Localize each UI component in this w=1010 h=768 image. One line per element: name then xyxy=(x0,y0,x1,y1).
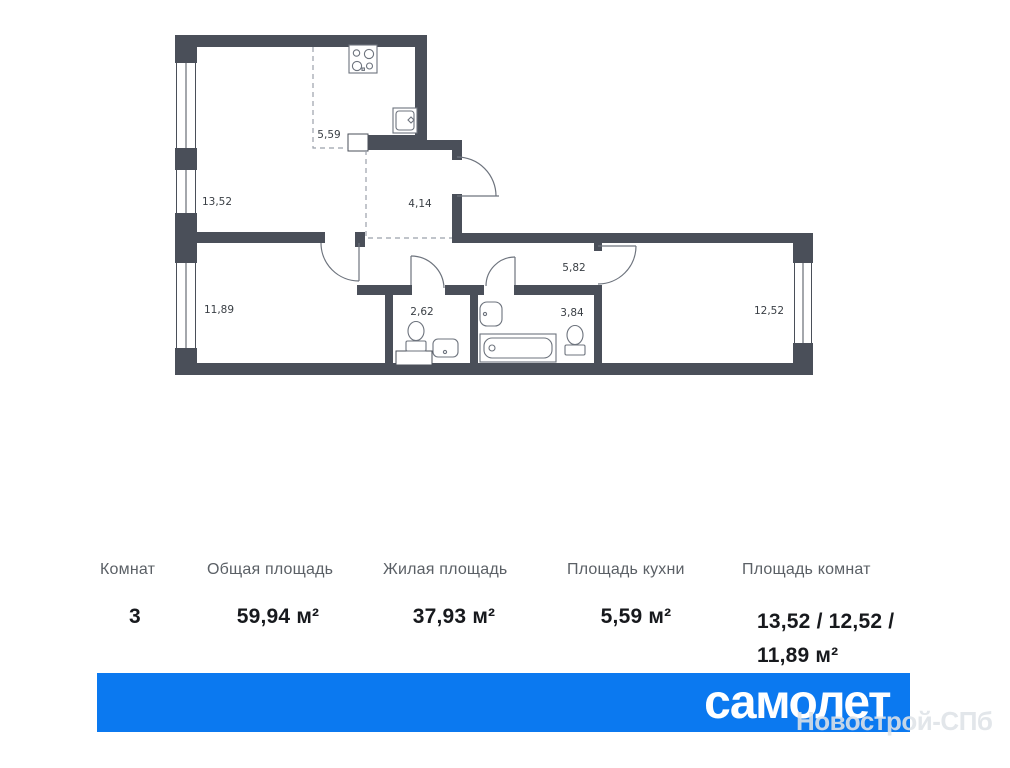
rooms-value: 3 xyxy=(100,605,170,629)
total-area-header: Общая площадь xyxy=(207,561,349,579)
col-rooms-area: Площадь комнат 13,52 / 12,52 / 11,89 м² xyxy=(742,561,908,672)
wall-room-right-lower xyxy=(594,285,602,363)
kitchen-area-label: 5,59 xyxy=(317,129,340,141)
doors xyxy=(321,157,636,288)
wall-bath-top-left xyxy=(478,285,484,295)
window-bedroom-left xyxy=(175,263,197,348)
hallway-area-label: 4,14 xyxy=(408,198,432,210)
wall-bedroom-door-jamb xyxy=(355,232,365,247)
window-living-2 xyxy=(175,170,197,213)
wc-area-label: 2,62 xyxy=(410,306,433,318)
window-living-1 xyxy=(175,63,197,148)
bathtub-icon xyxy=(480,334,556,362)
col-kitchen-area: Площадь кухни 5,59 м² xyxy=(567,561,705,629)
kitchen-shaft xyxy=(348,134,368,151)
col-rooms: Комнат 3 xyxy=(100,561,170,629)
wc-door-arc xyxy=(411,256,444,288)
living-area-header: Жилая площадь xyxy=(383,561,525,579)
wall-bath-top-right xyxy=(514,285,594,295)
bedroom-left-area-label: 11,89 xyxy=(204,304,234,316)
wall-entrance-lower xyxy=(452,194,462,243)
wall-entrance-jamb xyxy=(452,148,462,160)
wall-room-right-stub xyxy=(594,243,602,251)
kitchen-sink-icon xyxy=(393,108,417,133)
brand-banner: самолет xyxy=(97,673,910,732)
wall-under-sink xyxy=(367,135,415,150)
total-area-value: 59,94 м² xyxy=(207,605,349,629)
kitchen-area-header: Площадь кухни xyxy=(567,561,705,579)
col-total-area: Общая площадь 59,94 м² xyxy=(207,561,349,629)
wc-shaft xyxy=(396,351,432,365)
corridor-area-label: 5,82 xyxy=(562,262,585,274)
kitchen-area-value: 5,59 м² xyxy=(567,605,705,629)
window-bedroom-right xyxy=(793,263,813,343)
bedroom-left-door-arc xyxy=(321,243,359,281)
entrance-door-arc xyxy=(457,157,499,196)
wc-sink-icon xyxy=(433,339,458,357)
listing-card: 5,59 13,52 4,14 11,89 2,62 5,82 3,84 12,… xyxy=(0,0,1010,768)
rooms-area-value: 13,52 / 12,52 / 11,89 м² xyxy=(742,605,907,672)
rooms-header: Комнат xyxy=(100,561,170,579)
wall-wc-top-left xyxy=(357,285,412,295)
wall-living-bedroom xyxy=(175,232,325,243)
bedroom-right-area-label: 12,52 xyxy=(754,305,784,317)
wall-wc-bath-divider xyxy=(470,287,478,363)
floor-plan: 5,59 13,52 4,14 11,89 2,62 5,82 3,84 12,… xyxy=(0,0,1010,430)
wall-wc-left xyxy=(385,287,393,363)
bathroom-area-label: 3,84 xyxy=(560,307,584,319)
stove-icon xyxy=(349,45,377,73)
wall-top xyxy=(175,35,427,47)
living-area-value: 37,93 м² xyxy=(383,605,525,629)
toilet-wc-icon xyxy=(406,322,426,352)
toilet-bathroom-icon xyxy=(565,326,585,356)
fixtures xyxy=(349,45,585,362)
wall-bottom xyxy=(175,363,813,375)
bedroom-right-door-arc xyxy=(598,246,636,284)
room-labels: 5,59 13,52 4,14 11,89 2,62 5,82 3,84 12,… xyxy=(202,129,784,319)
col-living-area: Жилая площадь 37,93 м² xyxy=(383,561,525,629)
wall-wing-top xyxy=(452,233,813,243)
basin-icon xyxy=(480,302,502,326)
living-area-label: 13,52 xyxy=(202,196,232,208)
bathroom-door-arc xyxy=(486,257,515,286)
rooms-area-header: Площадь комнат xyxy=(742,561,908,579)
watermark: Новострой-СПб xyxy=(796,706,992,737)
